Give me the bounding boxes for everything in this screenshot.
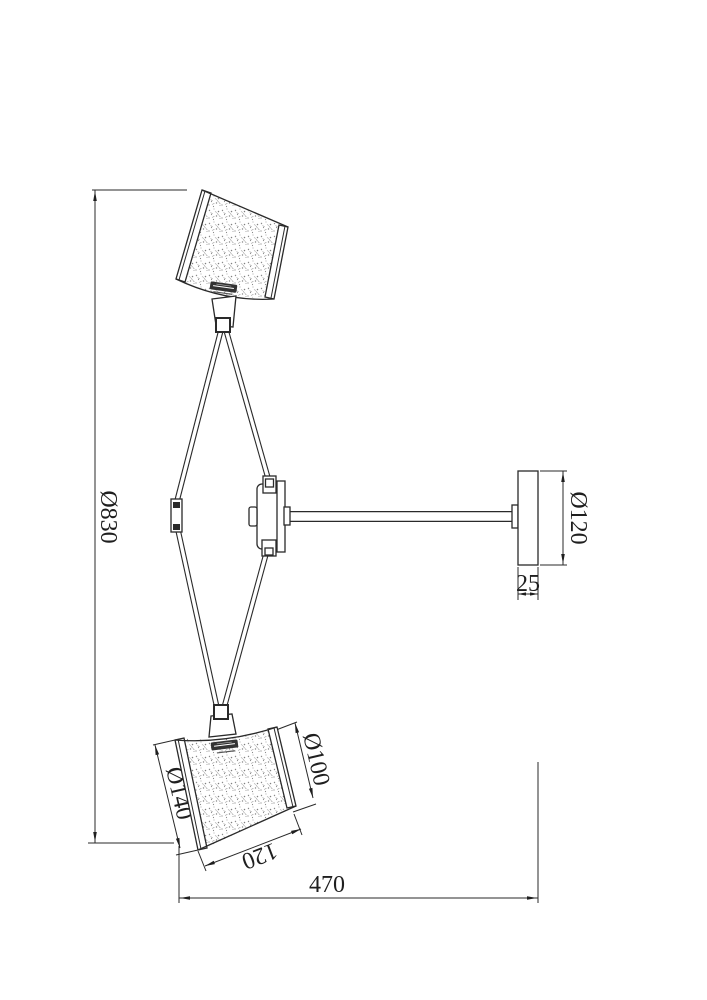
bottom-shade-knuckle	[214, 705, 228, 719]
extension-line	[198, 851, 206, 871]
hub-collar	[284, 507, 290, 525]
arrowhead	[93, 832, 97, 842]
dimension-label-canopy-diameter: Ø120	[565, 491, 591, 544]
hub-top-clamp-detail	[266, 479, 274, 487]
arrowhead	[527, 896, 537, 900]
lamp-dimension-drawing: Ø830 Ø120 25 470 Ø140	[0, 0, 707, 1000]
central-hub	[249, 476, 290, 556]
hub-left-nub	[249, 507, 257, 526]
joint-screw	[173, 524, 180, 530]
arrowhead	[93, 191, 97, 201]
arrowhead	[561, 472, 565, 482]
arrowhead	[561, 554, 565, 564]
dimension-label-shade-small-diameter: Ø100	[297, 731, 334, 789]
arrowhead	[205, 861, 215, 866]
arrowhead	[291, 829, 301, 834]
top-shade	[176, 190, 288, 332]
arm-end-cap	[512, 505, 518, 528]
arrowhead	[295, 723, 299, 733]
dimension-canopy-diameter: Ø120	[540, 471, 591, 565]
arrowhead	[309, 788, 313, 798]
bottom-shade	[175, 705, 296, 850]
technical-drawing-canvas: Ø830 Ø120 25 470 Ø140	[0, 0, 707, 1000]
extension-line	[153, 740, 175, 745]
left-elbow-joint	[171, 499, 182, 532]
arrowhead	[176, 838, 180, 848]
dimension-label-canopy-depth: 25	[516, 571, 540, 597]
top-shade-knuckle	[216, 318, 230, 332]
mount-arm	[290, 505, 518, 528]
dimension-label-overall-width: 470	[309, 872, 345, 898]
mount-plate	[518, 471, 538, 565]
arrowhead	[180, 896, 190, 900]
extension-line	[276, 722, 297, 730]
dimension-label-overall-height: Ø830	[95, 490, 121, 543]
joint-screw	[173, 502, 180, 508]
dimension-canopy-depth: 25	[516, 567, 540, 600]
arrowhead	[155, 745, 159, 755]
dimension-label-shade-height: 120	[238, 837, 281, 874]
hub-bottom-clamp-detail	[265, 548, 273, 555]
